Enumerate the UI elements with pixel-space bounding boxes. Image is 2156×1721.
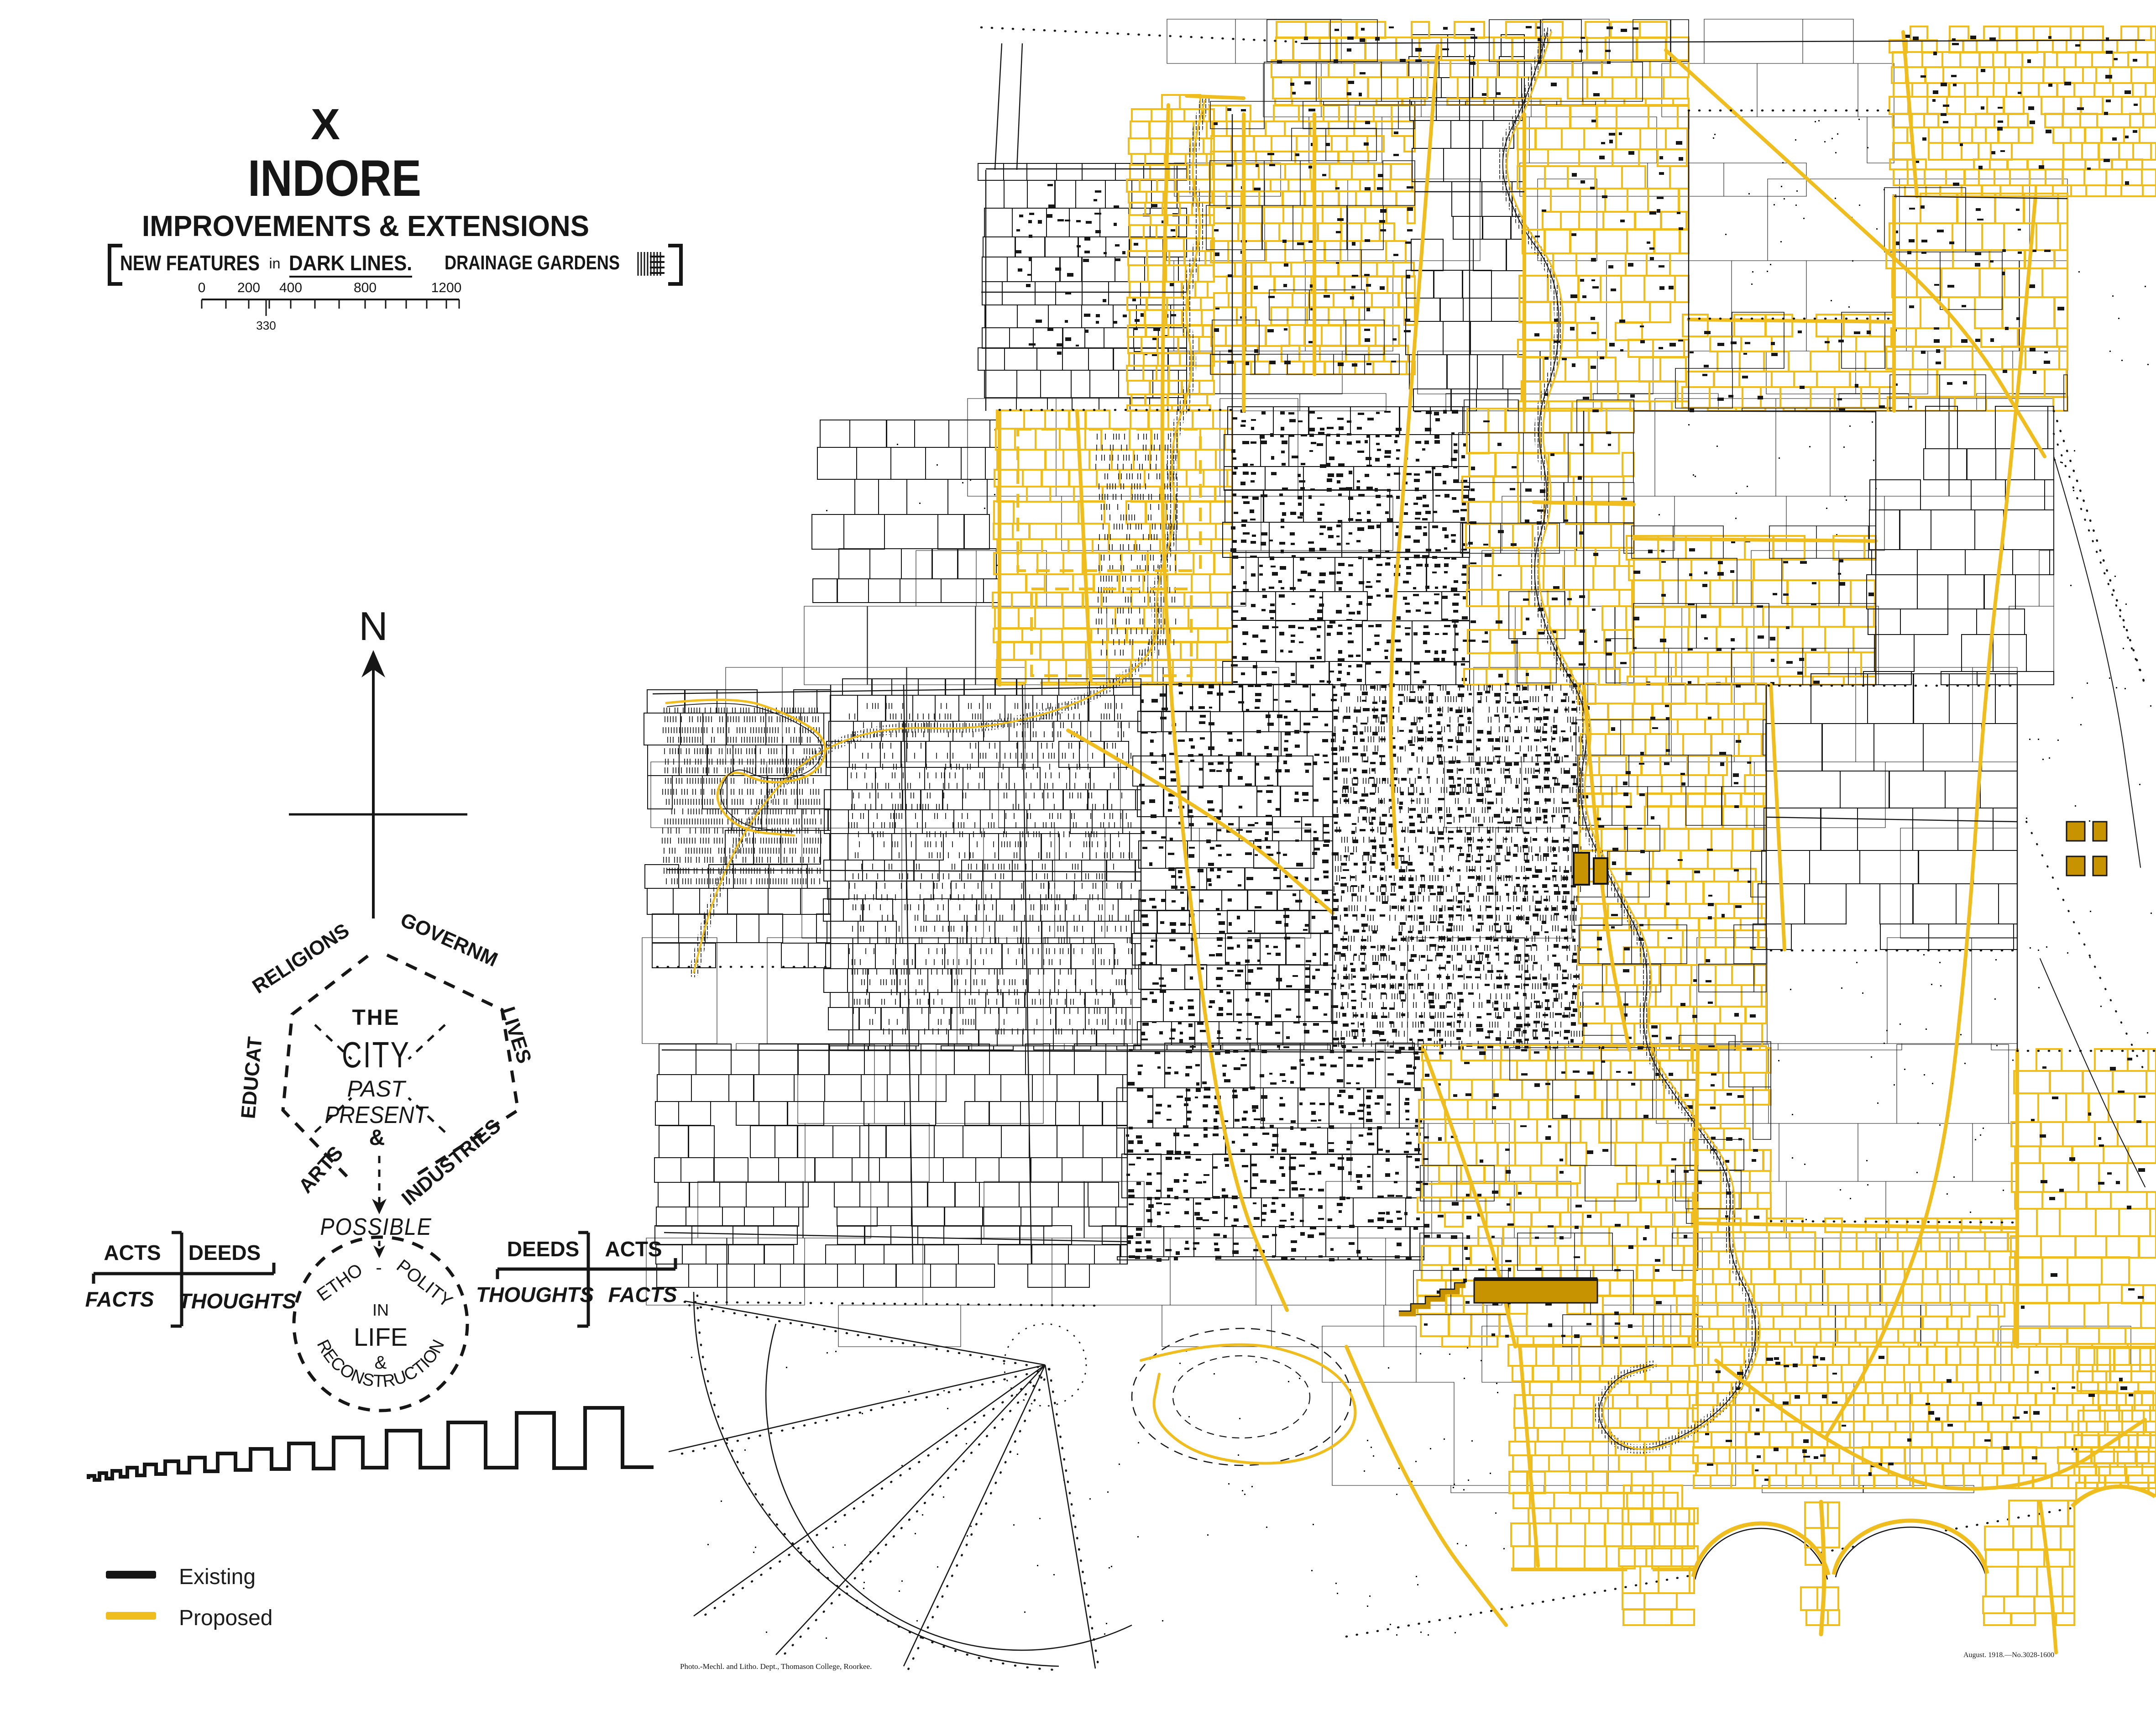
svg-text:DARK LINES.: DARK LINES. [289, 251, 412, 275]
svg-text:400: 400 [279, 280, 302, 295]
svg-text:&: & [369, 1126, 385, 1150]
svg-text:INDORE: INDORE [248, 150, 421, 207]
svg-text:IMPROVEMENTS & EXTENSIONS: IMPROVEMENTS & EXTENSIONS [142, 210, 589, 242]
svg-text:DEEDS: DEEDS [507, 1237, 579, 1261]
svg-text:800: 800 [354, 280, 377, 295]
svg-text:&: & [375, 1353, 387, 1373]
svg-text:in: in [269, 255, 281, 272]
svg-text:FACTS: FACTS [608, 1283, 677, 1306]
svg-text:Photo.-Mechl. and Litho. Dept.: Photo.-Mechl. and Litho. Dept., Thomason… [680, 1662, 872, 1671]
svg-text:THE: THE [352, 1006, 400, 1030]
svg-text:IN: IN [372, 1301, 389, 1319]
svg-text:ACTS: ACTS [104, 1241, 161, 1265]
svg-text:330: 330 [256, 319, 276, 332]
svg-text:-: - [376, 1258, 382, 1278]
svg-text:Proposed: Proposed [179, 1606, 272, 1630]
svg-text:PAST: PAST [347, 1076, 407, 1102]
svg-text:THOUGHTS: THOUGHTS [476, 1283, 594, 1306]
svg-text:THOUGHTS: THOUGHTS [178, 1289, 296, 1313]
svg-text:August. 1918.—No.3028-1600: August. 1918.—No.3028-1600 [1963, 1651, 2054, 1659]
svg-text:1200: 1200 [431, 280, 462, 295]
svg-text:ACTS: ACTS [605, 1237, 662, 1261]
svg-text:PRESENT: PRESENT [325, 1102, 429, 1128]
svg-text:LIFE: LIFE [354, 1322, 408, 1351]
svg-text:FACTS: FACTS [85, 1287, 154, 1311]
svg-text:NEW FEATURES: NEW FEATURES [120, 251, 260, 275]
svg-text:DRAINAGE GARDENS: DRAINAGE GARDENS [445, 252, 620, 274]
svg-text:N: N [359, 603, 388, 649]
svg-text:200: 200 [237, 280, 260, 295]
svg-text:0: 0 [198, 280, 206, 295]
svg-text:DEEDS: DEEDS [188, 1241, 261, 1265]
svg-text:X: X [311, 100, 340, 149]
svg-text:Existing: Existing [179, 1565, 256, 1589]
svg-text:CITY: CITY [342, 1034, 410, 1075]
